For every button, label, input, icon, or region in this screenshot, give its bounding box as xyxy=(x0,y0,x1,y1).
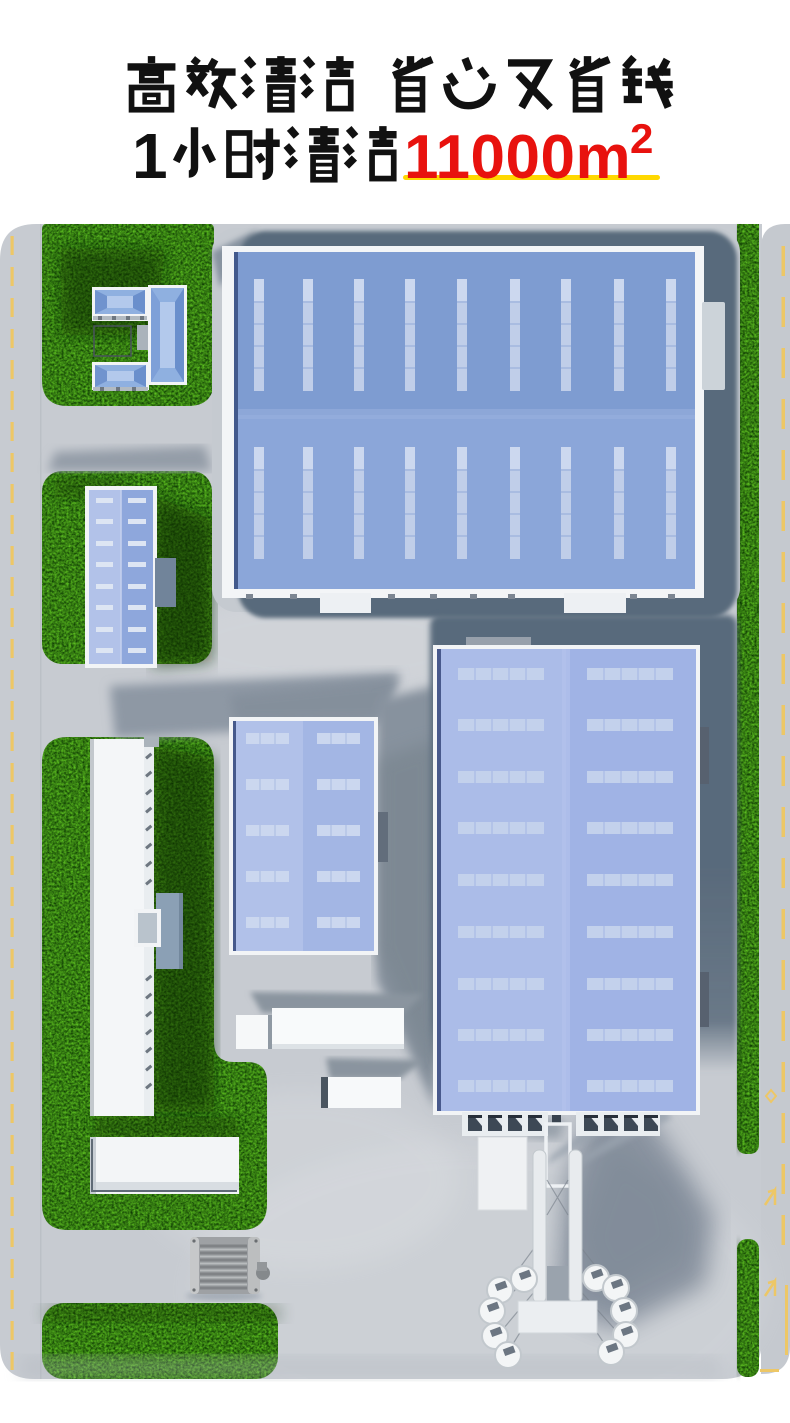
svg-text:1: 1 xyxy=(132,120,168,192)
svg-text:11000m: 11000m xyxy=(404,123,631,192)
svg-text:2: 2 xyxy=(630,115,653,162)
